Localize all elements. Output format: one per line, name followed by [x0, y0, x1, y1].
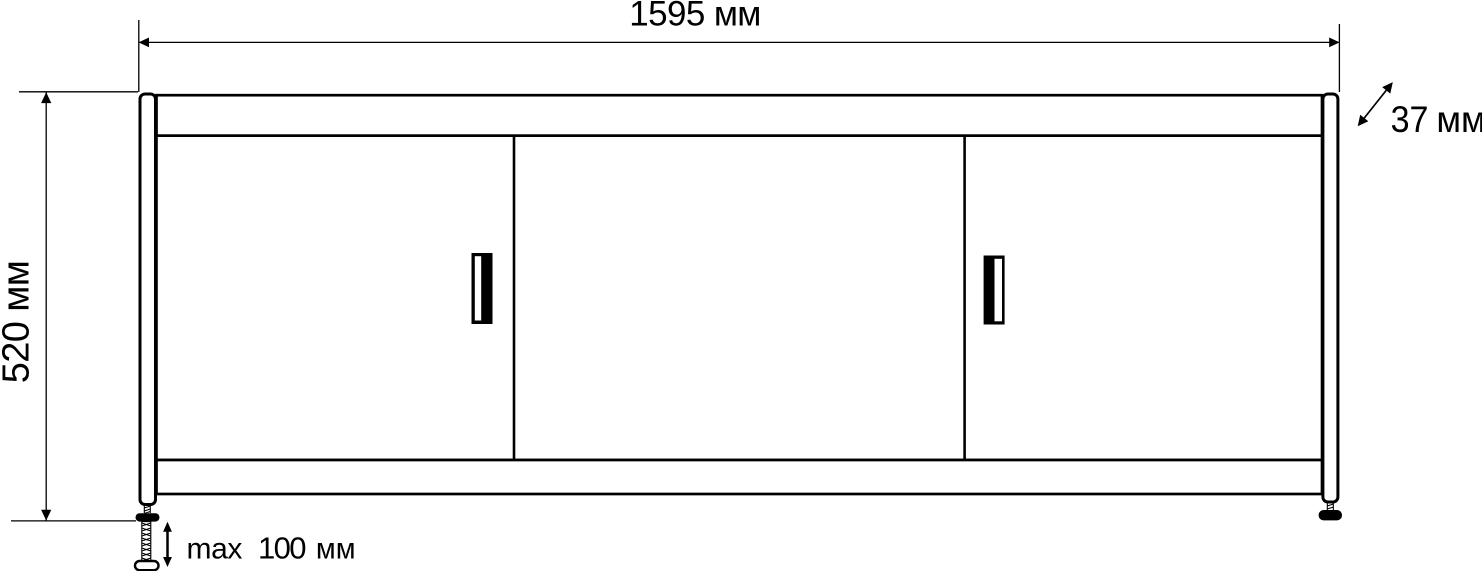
svg-text:520 мм: 520 мм — [0, 261, 38, 384]
svg-text:37: 37 — [1391, 99, 1429, 140]
svg-text:max: max — [187, 533, 243, 566]
svg-text:1595 мм: 1595 мм — [629, 0, 761, 33]
svg-text:мм: мм — [1436, 99, 1482, 140]
svg-text:100: 100 — [258, 531, 306, 566]
svg-text:мм: мм — [316, 533, 356, 566]
